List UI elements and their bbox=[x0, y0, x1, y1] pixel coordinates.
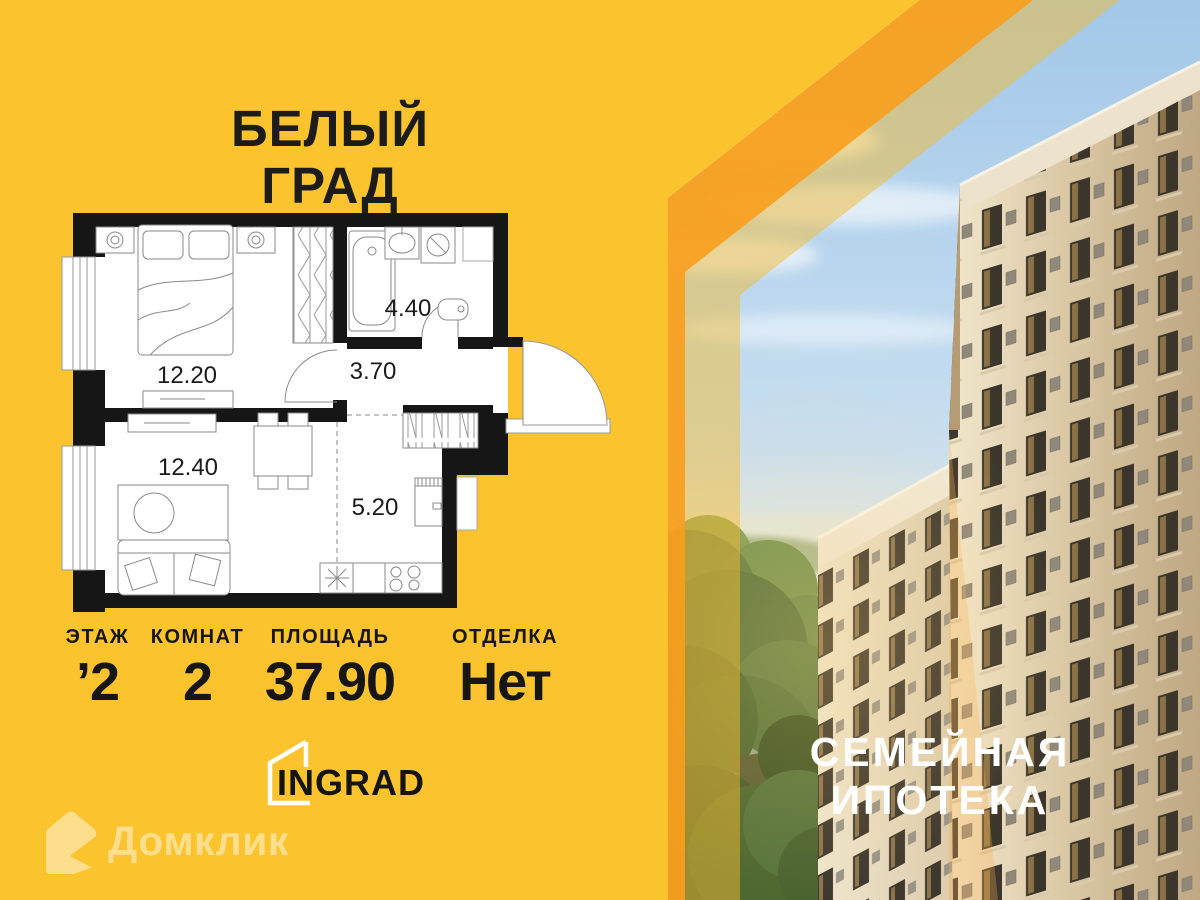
shaft-notch bbox=[463, 227, 493, 261]
promo-line2: ИПОТЕКА bbox=[690, 776, 1190, 824]
stat-area: ПЛОЩАДЬ 37.90 bbox=[240, 626, 420, 713]
tv-stand bbox=[128, 414, 216, 432]
kitchen-counter bbox=[320, 563, 442, 593]
stat-floor-value: ’2 bbox=[40, 651, 155, 713]
promo-line1: СЕМЕЙНАЯ bbox=[690, 728, 1190, 776]
watermark-text: Домклик bbox=[108, 818, 289, 865]
room-label-kitchen: 5.20 bbox=[352, 494, 399, 521]
washing-machine bbox=[421, 227, 455, 263]
stat-finish: ОТДЕЛКА Нет bbox=[420, 626, 590, 713]
room-label-hallway: 3.70 bbox=[350, 358, 397, 385]
stat-rooms-label: КОМНАТ bbox=[140, 626, 255, 649]
wardrobe-bedroom bbox=[293, 227, 333, 343]
apartment-stats: ЭТАЖ ’2 КОМНАТ 2 ПЛОЩАДЬ 37.90 ОТДЕЛКА Н… bbox=[0, 626, 660, 721]
stat-finish-label: ОТДЕЛКА bbox=[420, 626, 590, 649]
sofa bbox=[118, 540, 230, 595]
dresser bbox=[143, 391, 233, 408]
room-label-bathroom: 4.40 bbox=[385, 295, 432, 322]
developer-logo-text: INGRAD bbox=[277, 762, 425, 803]
nightstand-right bbox=[237, 227, 275, 253]
fridge bbox=[415, 478, 442, 526]
stat-rooms: КОМНАТ 2 bbox=[140, 626, 255, 713]
domclick-house-icon bbox=[36, 804, 104, 880]
promo-banner: СЕМЕЙНАЯ ИПОТЕКА bbox=[690, 728, 1190, 824]
room-label-living: 12.40 bbox=[158, 454, 218, 481]
watermark: Домклик bbox=[36, 804, 336, 894]
entrance-door bbox=[506, 341, 610, 433]
complex-title-line1: БЕЛЫЙ bbox=[130, 100, 530, 157]
bed bbox=[138, 225, 233, 355]
toilet bbox=[438, 299, 468, 320]
wardrobe-hall bbox=[403, 413, 478, 448]
shaft-notch-lower bbox=[457, 477, 477, 530]
room-label-bedroom: 12.20 bbox=[157, 362, 217, 389]
listing-card: БЕЛЫЙ ГРАД bbox=[0, 0, 1200, 900]
stat-floor: ЭТАЖ ’2 bbox=[40, 626, 155, 713]
sink bbox=[385, 227, 419, 259]
nightstand-left bbox=[96, 227, 134, 253]
stat-area-value: 37.90 bbox=[240, 651, 420, 713]
rug-and-table bbox=[118, 485, 228, 540]
stat-floor-label: ЭТАЖ bbox=[40, 626, 155, 649]
stat-rooms-value: 2 bbox=[140, 651, 255, 713]
stat-finish-value: Нет bbox=[420, 651, 590, 713]
floor-plan: 12.20 12.40 3.70 4.40 5.20 bbox=[40, 195, 640, 625]
stat-area-label: ПЛОЩАДЬ bbox=[240, 626, 420, 649]
